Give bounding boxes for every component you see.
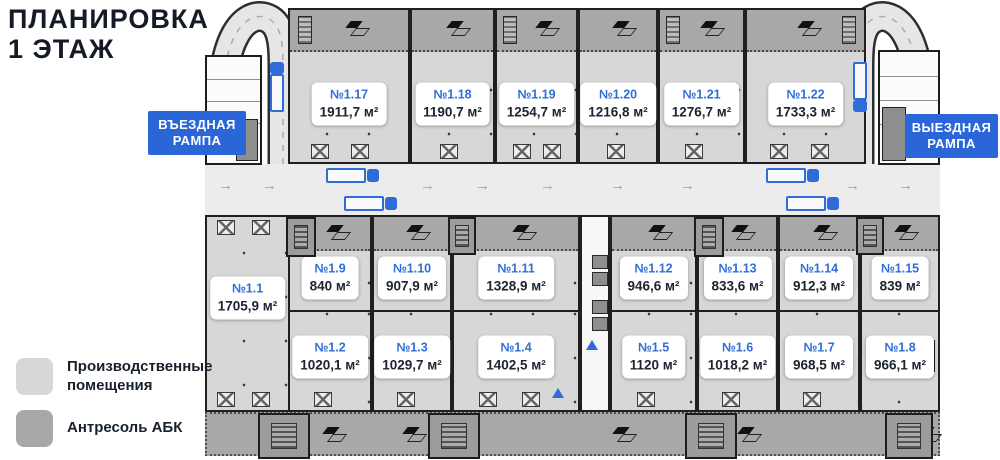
- unit-label-card: №1.6 1018,2 м²: [700, 336, 776, 379]
- dock-door: [217, 392, 235, 407]
- shaft-box: [592, 255, 608, 269]
- unit-number: №1.22: [776, 88, 836, 102]
- unit-1-17: №1.17 1911,7 м²: [288, 8, 410, 164]
- dock-door: [252, 392, 270, 407]
- truck-trailer: [344, 196, 384, 211]
- stair-core: [856, 217, 884, 255]
- unit-number: №1.21: [672, 88, 732, 102]
- truck-icon: [326, 168, 379, 183]
- unit-label-card: №1.13 833,6 м²: [703, 257, 771, 300]
- unit-area: 1402,5 м²: [486, 358, 546, 373]
- truck-icon: [344, 196, 397, 211]
- floor-plan-canvas: ПЛАНИРОВКА 1 ЭТАЖ → → → → → → → → → №1.1…: [0, 0, 1000, 460]
- unit-1-22: №1.22 1733,3 м²: [745, 8, 866, 164]
- dock-door: [513, 144, 531, 159]
- workstation-icon: [612, 426, 634, 442]
- legend-swatch-production: [16, 358, 53, 395]
- stairs-icon: [503, 16, 517, 44]
- unit-1-2: №1.2 1020,1 м²: [288, 310, 372, 412]
- unit-label-card: №1.18 1190,7 м²: [415, 83, 490, 126]
- unit-area: 966,1 м²: [874, 358, 926, 373]
- dock-door: [811, 144, 829, 159]
- truck-cab: [385, 197, 397, 210]
- shaft-box: [592, 272, 608, 286]
- stair-core: [258, 413, 310, 459]
- unit-area: 968,5 м²: [793, 358, 845, 373]
- unit-number: №1.5: [630, 341, 678, 355]
- direction-arrow-icon: →: [610, 177, 625, 194]
- unit-label-card: №1.2 1020,1 м²: [292, 336, 368, 379]
- unit-number: №1.18: [423, 88, 482, 102]
- exit-ramp-badge: ВЫЕЗДНАЯ РАМПА: [905, 114, 998, 158]
- unit-label-card: №1.20 1216,8 м²: [580, 83, 656, 126]
- unit-label-card: №1.1 1705,9 м²: [210, 277, 286, 320]
- unit-label-card: №1.12 946,6 м²: [619, 257, 687, 300]
- direction-arrow-icon: →: [680, 177, 695, 194]
- dock-door: [479, 392, 497, 407]
- legend-label-production: Производственные помещения: [67, 358, 217, 396]
- dock-door: [722, 392, 740, 407]
- truck-icon: [766, 168, 819, 183]
- mezzanine-band: [660, 10, 743, 52]
- unit-number: №1.11: [486, 262, 546, 276]
- truck-trailer: [853, 62, 867, 100]
- unit-label-card: №1.9 840 м²: [302, 257, 359, 300]
- unit-number: №1.8: [874, 341, 926, 355]
- workstation-icon: [345, 20, 367, 36]
- unit-label-card: №1.22 1733,3 м²: [768, 83, 844, 126]
- unit-area: 1276,7 м²: [672, 105, 732, 120]
- workstation-icon: [813, 224, 835, 240]
- dock-door: [803, 392, 821, 407]
- truck-icon: [270, 62, 284, 112]
- workstation-icon: [322, 426, 344, 442]
- unit-number: №1.19: [507, 88, 567, 102]
- unit-1-6: №1.6 1018,2 м²: [697, 310, 778, 412]
- unit-1-7: №1.7 968,5 м²: [778, 310, 860, 412]
- workstation-icon: [731, 224, 753, 240]
- unit-label-card: №1.17 1911,7 м²: [312, 83, 387, 126]
- mezzanine-band: [612, 217, 695, 251]
- unit-number: №1.6: [708, 341, 768, 355]
- unit-number: №1.17: [320, 88, 379, 102]
- unit-area: 912,3 м²: [793, 279, 845, 294]
- unit-label-card: №1.15 839 м²: [872, 257, 929, 300]
- dock-door: [685, 144, 703, 159]
- mezzanine-band: [412, 10, 493, 52]
- bottom-mezzanine-strip: [205, 412, 940, 456]
- workstation-icon: [648, 224, 670, 240]
- unit-1-21: №1.21 1276,7 м²: [658, 8, 745, 164]
- workstation-icon: [612, 20, 634, 36]
- legend-item-mezzanine: Антресоль АБК: [16, 410, 182, 447]
- mezzanine-band: [497, 10, 576, 52]
- wall-line: [880, 76, 938, 77]
- unit-label-card: №1.11 1328,9 м²: [478, 257, 554, 300]
- mezzanine-band: [780, 217, 858, 251]
- unit-area: 1020,1 м²: [300, 358, 360, 373]
- blue-marker-icon: [586, 340, 598, 350]
- unit-number: №1.9: [310, 262, 351, 276]
- unit-area: 1705,9 м²: [218, 299, 278, 314]
- truck-trailer: [786, 196, 826, 211]
- unit-area: 833,6 м²: [711, 279, 763, 294]
- unit-area: 1254,7 м²: [507, 105, 567, 120]
- workstation-icon: [894, 224, 916, 240]
- unit-area: 839 м²: [880, 279, 921, 294]
- entry-ramp-badge: ВЪЕЗДНАЯ РАМПА: [148, 111, 246, 155]
- direction-arrow-icon: →: [262, 177, 277, 194]
- unit-label-card: №1.8 966,1 м²: [866, 336, 934, 379]
- stair-core: [882, 107, 906, 161]
- unit-label-card: №1.5 1120 м²: [622, 336, 686, 379]
- stair-core: [448, 217, 476, 255]
- truck-trailer: [270, 74, 284, 112]
- truck-trailer: [766, 168, 806, 183]
- unit-number: №1.12: [627, 262, 679, 276]
- unit-area: 946,6 м²: [627, 279, 679, 294]
- unit-number: №1.15: [880, 262, 921, 276]
- workstation-icon: [797, 20, 819, 36]
- wall-line: [207, 79, 260, 80]
- unit-label-card: №1.10 907,9 м²: [378, 257, 446, 300]
- stairs-icon: [666, 16, 680, 44]
- truck-cab: [827, 197, 839, 210]
- shaft-box: [592, 300, 608, 314]
- unit-1-14: №1.14 912,3 м²: [778, 215, 860, 312]
- workstation-icon: [326, 224, 348, 240]
- stair-core: [885, 413, 933, 459]
- legend-swatch-mezzanine: [16, 410, 53, 447]
- direction-arrow-icon: →: [898, 177, 913, 194]
- unit-number: №1.7: [793, 341, 845, 355]
- unit-1-5: №1.5 1120 м²: [610, 310, 697, 412]
- workstation-icon: [737, 426, 759, 442]
- direction-arrow-icon: →: [218, 177, 233, 194]
- wall-line: [880, 100, 938, 101]
- mezzanine-band: [580, 10, 656, 52]
- stairs-icon: [842, 16, 856, 44]
- unit-number: №1.14: [793, 262, 845, 276]
- direction-arrow-icon: →: [420, 177, 435, 194]
- dock-door: [607, 144, 625, 159]
- unit-label-card: №1.7 968,5 м²: [785, 336, 853, 379]
- direction-arrow-icon: →: [845, 177, 860, 194]
- unit-area: 1911,7 м²: [320, 105, 379, 120]
- legend-item-production: Производственные помещения: [16, 358, 217, 396]
- mezzanine-band: [747, 10, 864, 52]
- unit-area: 907,9 м²: [386, 279, 438, 294]
- unit-area: 840 м²: [310, 279, 351, 294]
- unit-1-20: №1.20 1216,8 м²: [578, 8, 658, 164]
- dock-door: [314, 392, 332, 407]
- workstation-icon: [402, 426, 424, 442]
- unit-label-card: №1.19 1254,7 м²: [499, 83, 575, 126]
- unit-label-card: №1.3 1029,7 м²: [374, 336, 450, 379]
- truck-cab: [853, 100, 867, 112]
- dock-door: [397, 392, 415, 407]
- dock-door: [543, 144, 561, 159]
- unit-number: №1.20: [588, 88, 648, 102]
- unit-area: 1216,8 м²: [588, 105, 648, 120]
- dock-door: [522, 392, 540, 407]
- unit-area: 1029,7 м²: [382, 358, 442, 373]
- mezzanine-band: [290, 10, 408, 52]
- workstation-icon: [535, 20, 557, 36]
- unit-label-card: №1.4 1402,5 м²: [478, 336, 554, 379]
- dock-door: [311, 144, 329, 159]
- stair-core: [685, 413, 737, 459]
- shaft-box: [592, 317, 608, 331]
- unit-area: 1190,7 м²: [423, 105, 482, 120]
- unit-number: №1.13: [711, 262, 763, 276]
- wall-line: [207, 101, 260, 102]
- unit-area: 1120 м²: [630, 358, 678, 373]
- legend-label-mezzanine: Антресоль АБК: [67, 419, 182, 438]
- unit-area: 1328,9 м²: [486, 279, 546, 294]
- unit-label-card: №1.21 1276,7 м²: [664, 83, 740, 126]
- unit-1-10: №1.10 907,9 м²: [372, 215, 452, 312]
- dock-door: [637, 392, 655, 407]
- workstation-icon: [700, 20, 722, 36]
- dock-door: [440, 144, 458, 159]
- unit-1-12: №1.12 946,6 м²: [610, 215, 697, 312]
- truck-icon: [853, 62, 867, 112]
- truck-trailer: [326, 168, 366, 183]
- truck-cab: [807, 169, 819, 182]
- unit-1-1: №1.1 1705,9 м²: [205, 215, 290, 412]
- unit-number: №1.1: [218, 282, 278, 296]
- stair-core: [694, 217, 724, 257]
- truck-cab: [270, 62, 284, 74]
- unit-1-18: №1.18 1190,7 м²: [410, 8, 495, 164]
- unit-number: №1.3: [382, 341, 442, 355]
- unit-1-3: №1.3 1029,7 м²: [372, 310, 452, 412]
- dock-door: [252, 220, 270, 235]
- workstation-icon: [446, 20, 468, 36]
- stairs-icon: [298, 16, 312, 44]
- dock-door: [351, 144, 369, 159]
- unit-number: №1.10: [386, 262, 438, 276]
- direction-arrow-icon: →: [475, 177, 490, 194]
- mezzanine-band: [374, 217, 450, 251]
- dock-door: [217, 220, 235, 235]
- stair-core: [428, 413, 480, 459]
- stair-core: [286, 217, 316, 257]
- unit-area: 1018,2 м²: [708, 358, 768, 373]
- unit-label-card: №1.14 912,3 м²: [785, 257, 853, 300]
- direction-arrow-icon: →: [540, 177, 555, 194]
- truck-icon: [786, 196, 839, 211]
- blue-marker-icon: [552, 388, 564, 398]
- unit-number: №1.2: [300, 341, 360, 355]
- unit-area: 1733,3 м²: [776, 105, 836, 120]
- dock-door: [770, 144, 788, 159]
- unit-number: №1.4: [486, 341, 546, 355]
- workstation-icon: [512, 224, 534, 240]
- unit-1-19: №1.19 1254,7 м²: [495, 8, 578, 164]
- unit-1-8: №1.8 966,1 м²: [860, 310, 940, 412]
- truck-cab: [367, 169, 379, 182]
- workstation-icon: [406, 224, 428, 240]
